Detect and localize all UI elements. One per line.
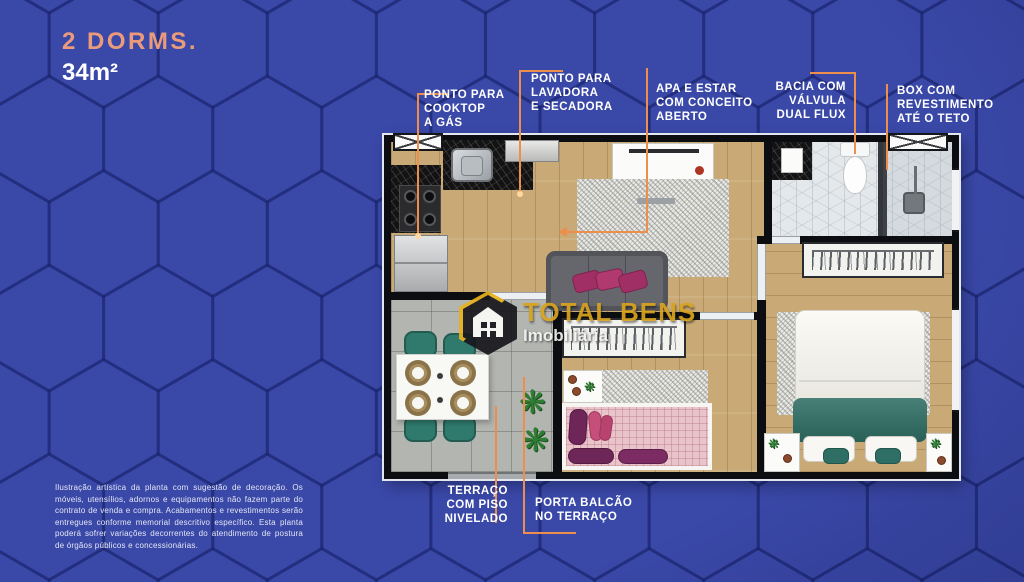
callout-line — [810, 72, 856, 74]
burner-icon — [423, 213, 436, 226]
dining-table — [396, 354, 489, 420]
decor-item — [937, 456, 946, 465]
callout-open-concept: APA E ESTAR COM CONCEITO ABERTO — [656, 82, 753, 124]
plant-icon: ❋ — [768, 436, 779, 452]
plant-icon: ❋ — [522, 424, 549, 456]
callout-line — [886, 84, 888, 170]
bathroom-sink — [781, 148, 803, 173]
burner-icon — [423, 190, 436, 203]
window-icon — [888, 133, 948, 151]
decor-item — [695, 166, 704, 175]
media-console — [637, 198, 675, 204]
washer-dryer-spot — [505, 140, 559, 162]
floorplan-page: 2 DORMS. 34m² — [0, 0, 1024, 582]
callout-cooktop: PONTO PARA COOKTOP A GÁS — [424, 88, 505, 130]
bedroom2-rug — [602, 370, 708, 403]
disclaimer-text: Ilustração artística da planta com suges… — [55, 482, 303, 552]
bed-pillow — [568, 448, 614, 464]
double-bed — [795, 310, 925, 470]
bed-pillow — [618, 449, 668, 464]
hangers-icon — [812, 250, 933, 270]
bedroom2-door — [700, 312, 754, 320]
callout-toilet: BACIA COM VÁLVULA DUAL FLUX — [756, 80, 846, 122]
burner-icon — [404, 190, 417, 203]
decor-item — [437, 397, 443, 403]
callout-line — [417, 93, 419, 238]
bed-pillow — [598, 414, 614, 441]
refrigerator — [394, 235, 448, 292]
decor-item — [437, 373, 443, 379]
brand-watermark: TOTAL BENS Imobiliária — [459, 291, 696, 355]
callout-point — [517, 191, 523, 197]
callout-balcony-door: PORTA BALCÃO NO TERRAÇO — [535, 496, 632, 524]
callout-line — [523, 532, 576, 534]
place-setting — [450, 390, 476, 416]
unit-area-label: 34m² — [62, 59, 198, 87]
unit-type-title: 2 DORMS. — [62, 28, 198, 56]
callout-line — [567, 231, 648, 233]
bed-pillow — [875, 448, 901, 464]
nightstand: ❋ — [764, 433, 800, 472]
callout-point — [415, 233, 421, 239]
bathroom-vanity — [772, 142, 812, 180]
wall — [764, 142, 772, 236]
tv-stand — [612, 143, 714, 182]
bed-pillow — [568, 408, 588, 445]
bedroom2-desk: ❋ — [563, 370, 603, 403]
side-window — [952, 308, 959, 412]
plant-icon: ❋ — [584, 379, 595, 395]
bedroom1-door — [757, 244, 766, 300]
bathroom-door — [772, 236, 800, 244]
place-setting — [450, 360, 476, 386]
decor-item — [783, 454, 792, 463]
bedroom1-wardrobe — [802, 242, 944, 278]
decor-item — [572, 387, 581, 396]
plant-icon: ❋ — [930, 436, 941, 452]
unit-title-block: 2 DORMS. 34m² — [62, 28, 198, 87]
kitchen-sink — [451, 148, 493, 182]
decor-item — [568, 375, 577, 384]
place-setting — [405, 360, 431, 386]
brand-tagline: Imobiliária — [523, 326, 696, 346]
shower-partition — [878, 142, 883, 236]
callout-terrace: TERRAÇO COM PISO NIVELADO — [418, 484, 508, 526]
callout-line — [646, 68, 648, 233]
nightstand: ❋ — [926, 433, 952, 472]
callout-line — [519, 70, 521, 196]
side-window — [952, 168, 959, 232]
burner-icon — [404, 213, 417, 226]
bed-pillow — [823, 448, 849, 464]
single-bed — [562, 403, 712, 470]
shower-box-floor — [883, 142, 952, 236]
tv — [629, 149, 699, 153]
callout-arrow-icon — [558, 227, 567, 237]
callout-line — [854, 72, 856, 154]
callout-line — [523, 377, 525, 534]
logo-hexagon — [459, 291, 517, 355]
callout-shower-box: BOX COM REVESTIMENTO ATÉ O TETO — [897, 84, 994, 126]
callout-washer: PONTO PARA LAVADORA E SECADORA — [531, 72, 613, 114]
shower-head-icon — [903, 192, 925, 214]
brand-name: TOTAL BENS — [523, 297, 696, 328]
place-setting — [405, 390, 431, 416]
gas-cooktop — [399, 185, 441, 232]
